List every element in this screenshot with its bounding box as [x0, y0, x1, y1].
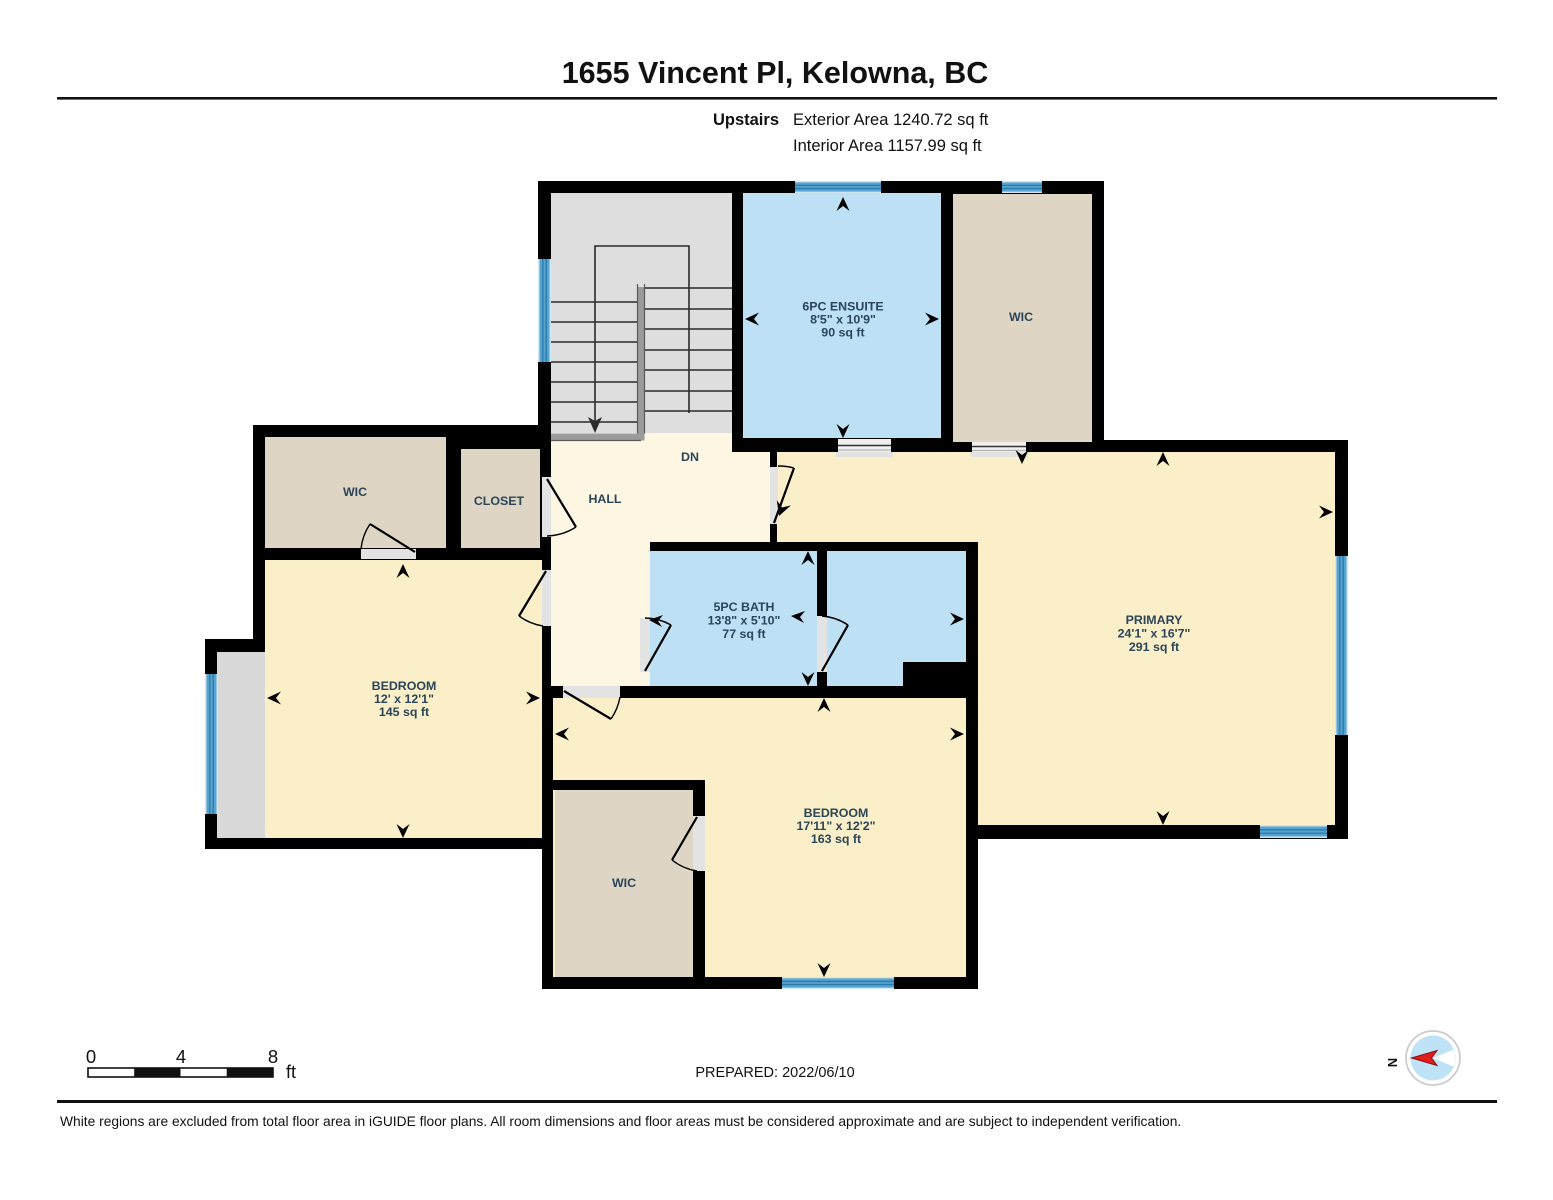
svg-text:ft: ft — [286, 1062, 296, 1082]
svg-text:DN: DN — [681, 450, 699, 464]
svg-text:WIC: WIC — [1009, 310, 1033, 324]
svg-text:PRIMARY: PRIMARY — [1126, 613, 1183, 627]
svg-text:1655 Vincent Pl, Kelowna, BC: 1655 Vincent Pl, Kelowna, BC — [562, 56, 989, 90]
svg-text:White regions are excluded fro: White regions are excluded from total fl… — [60, 1114, 1181, 1129]
svg-text:CLOSET: CLOSET — [474, 494, 525, 508]
svg-text:90 sq ft: 90 sq ft — [821, 326, 864, 340]
svg-text:12' x 12'1": 12' x 12'1" — [374, 692, 434, 706]
svg-text:PREPARED: 2022/06/10: PREPARED: 2022/06/10 — [695, 1065, 854, 1081]
svg-text:BEDROOM: BEDROOM — [372, 679, 437, 693]
svg-text:163 sq ft: 163 sq ft — [811, 832, 861, 846]
svg-text:Upstairs: Upstairs — [713, 111, 779, 129]
svg-text:WIC: WIC — [343, 485, 367, 499]
svg-text:4: 4 — [176, 1046, 186, 1067]
svg-text:0: 0 — [86, 1046, 96, 1067]
svg-text:145 sq ft: 145 sq ft — [379, 705, 429, 719]
svg-text:13'8" x 5'10": 13'8" x 5'10" — [708, 614, 781, 628]
svg-text:77 sq ft: 77 sq ft — [722, 627, 765, 641]
svg-text:291 sq ft: 291 sq ft — [1129, 640, 1179, 654]
svg-text:N: N — [1385, 1058, 1400, 1067]
svg-text:Interior Area 1157.99 sq ft: Interior Area 1157.99 sq ft — [793, 137, 982, 155]
svg-text:Exterior Area 1240.72 sq ft: Exterior Area 1240.72 sq ft — [793, 111, 989, 129]
svg-text:BEDROOM: BEDROOM — [804, 806, 869, 820]
svg-text:6PC ENSUITE: 6PC ENSUITE — [802, 300, 883, 314]
svg-text:WIC: WIC — [612, 876, 636, 890]
svg-text:8'5" x 10'9": 8'5" x 10'9" — [810, 313, 876, 327]
svg-text:17'11" x 12'2": 17'11" x 12'2" — [797, 819, 876, 833]
svg-text:HALL: HALL — [588, 492, 621, 506]
svg-text:5PC BATH: 5PC BATH — [713, 600, 774, 614]
svg-text:24'1" x 16'7": 24'1" x 16'7" — [1118, 627, 1191, 641]
svg-text:8: 8 — [268, 1046, 278, 1067]
